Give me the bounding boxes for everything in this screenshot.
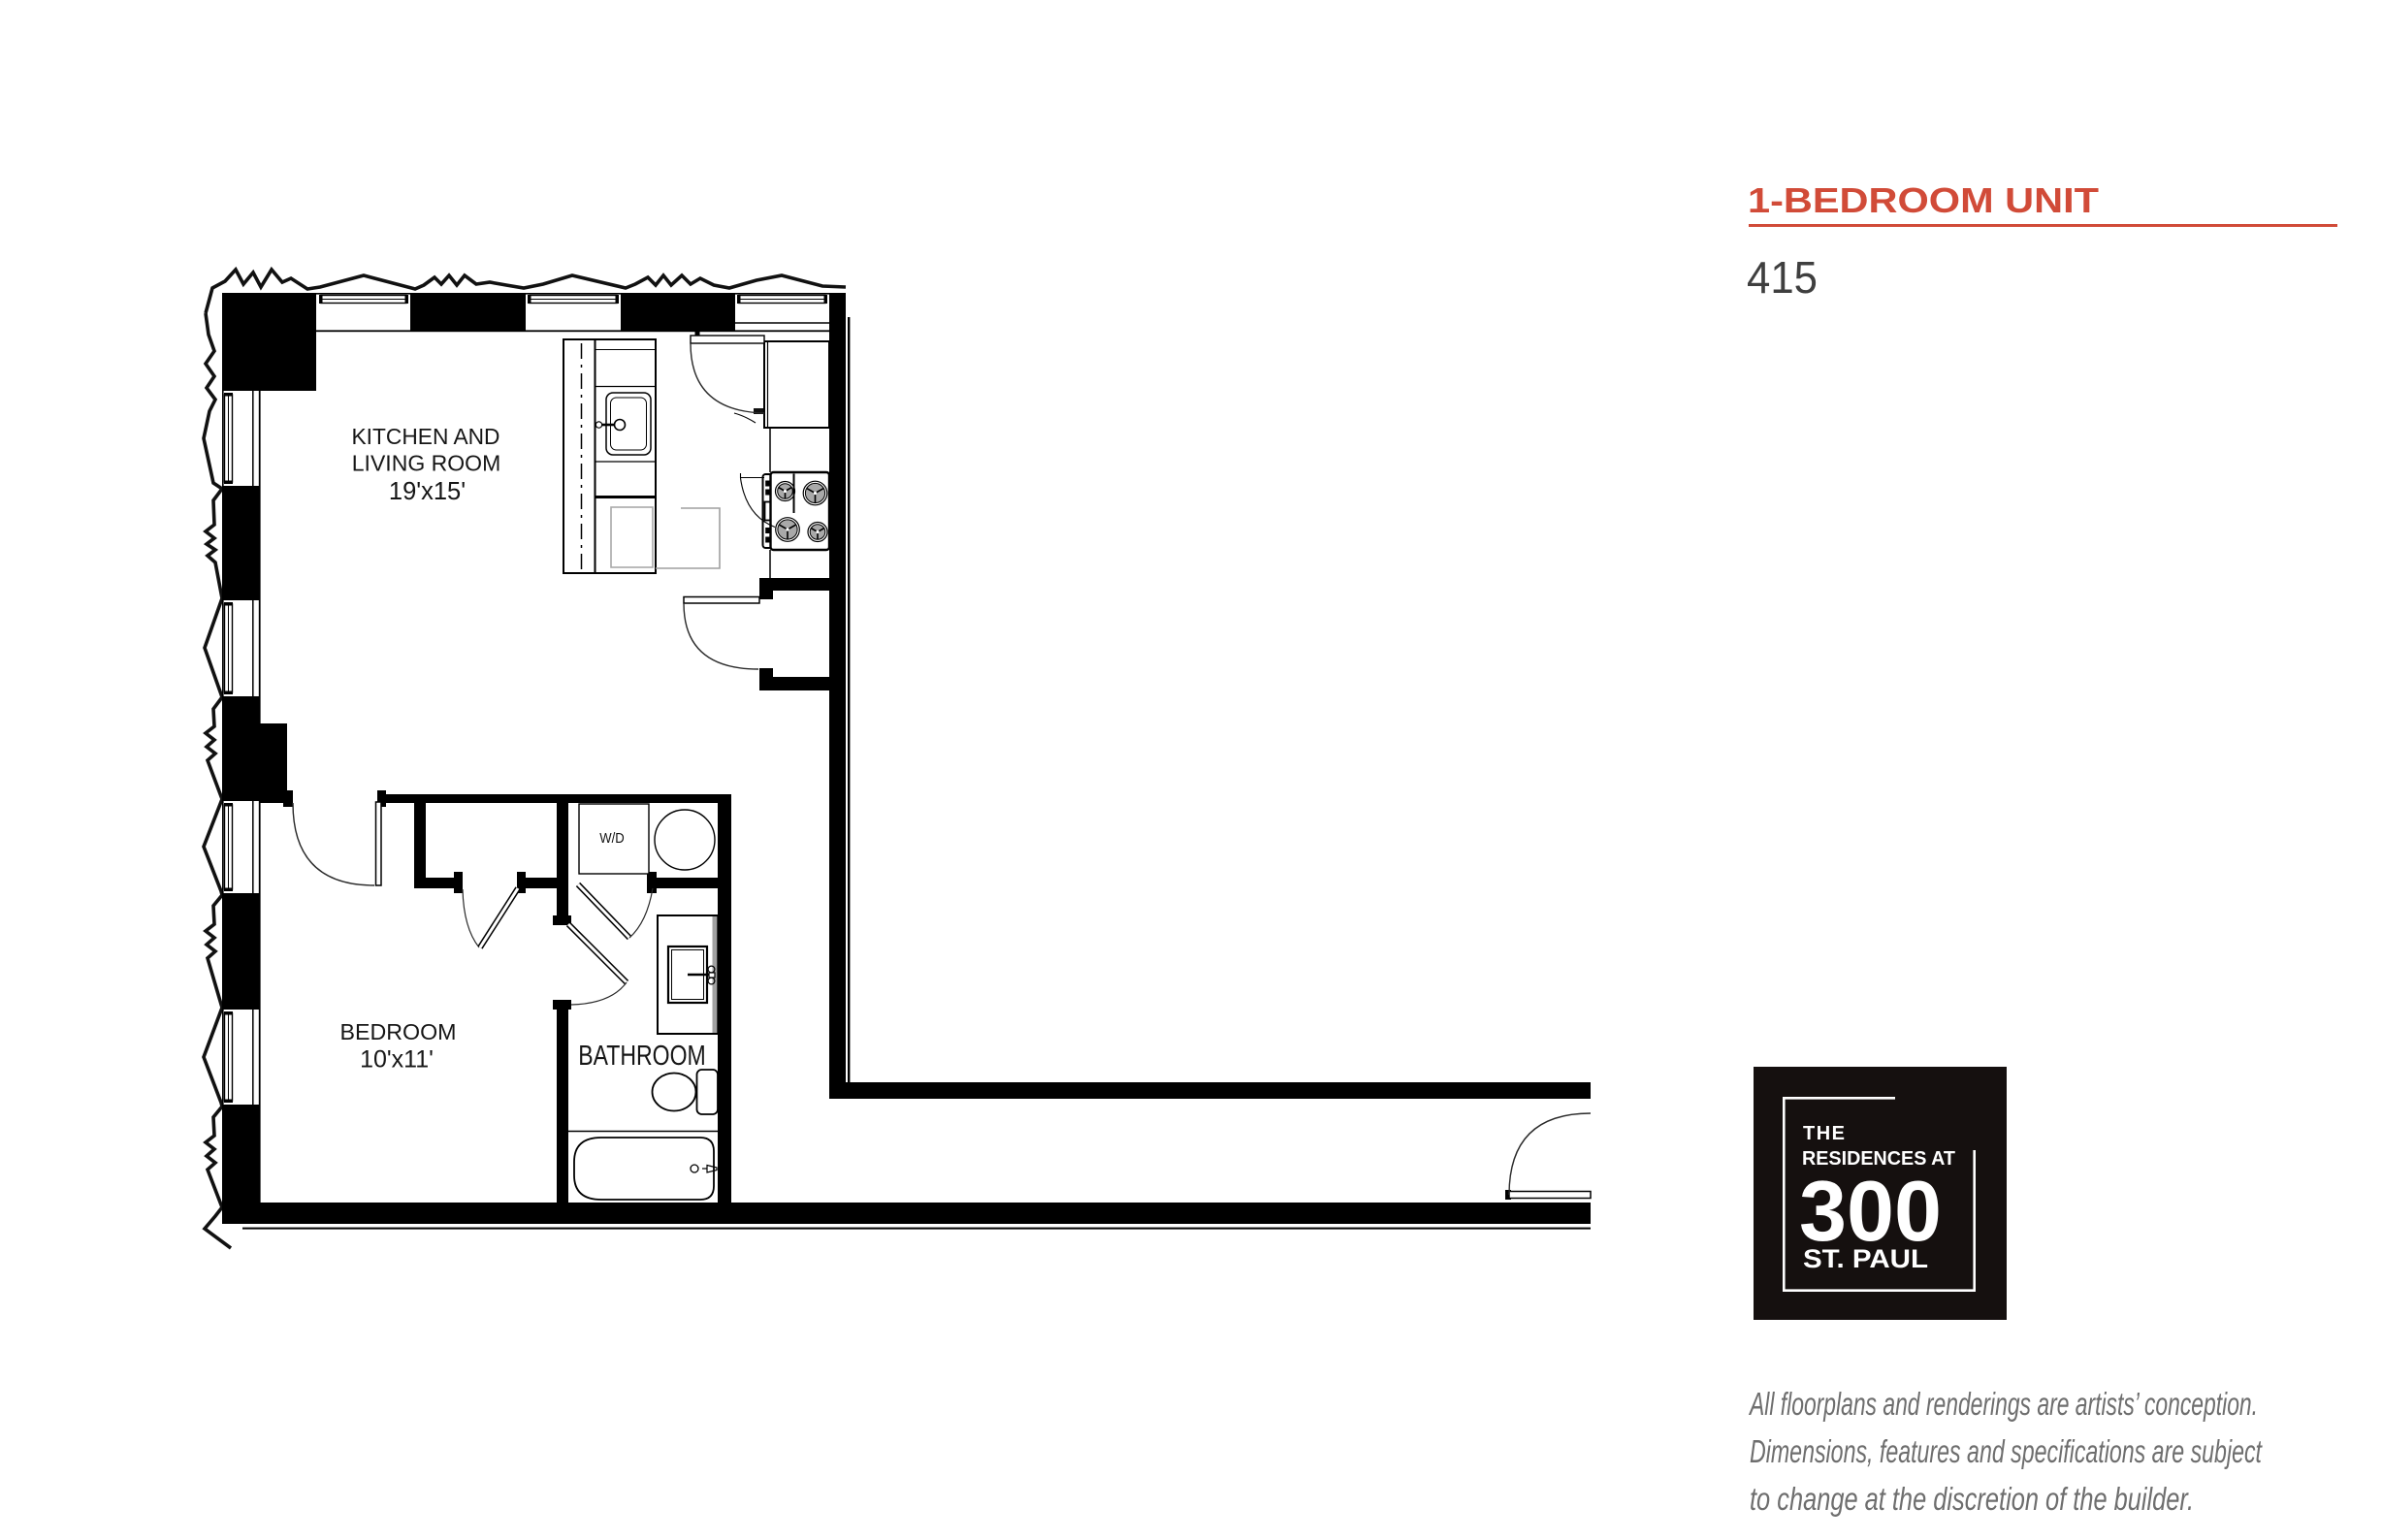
svg-text:10'x11': 10'x11' xyxy=(360,1046,434,1074)
svg-text:19'x15': 19'x15' xyxy=(389,478,466,505)
svg-text:BATHROOM: BATHROOM xyxy=(578,1041,706,1072)
svg-text:THE: THE xyxy=(1803,1123,1847,1144)
svg-text:KITCHEN AND: KITCHEN AND xyxy=(352,424,500,449)
svg-text:All floorplans and renderings: All floorplans and renderings are artist… xyxy=(1749,1386,2258,1422)
svg-text:Dimensions, features and speci: Dimensions, features and specifications … xyxy=(1750,1433,2263,1469)
svg-text:415: 415 xyxy=(1747,252,1818,303)
svg-text:W/D: W/D xyxy=(599,830,625,847)
svg-text:ST. PAUL: ST. PAUL xyxy=(1803,1244,1928,1273)
svg-text:1-BEDROOM UNIT: 1-BEDROOM UNIT xyxy=(1748,180,2099,220)
svg-text:LIVING ROOM: LIVING ROOM xyxy=(352,451,501,476)
svg-text:to change at the discretion of: to change at the discretion of the build… xyxy=(1750,1481,2194,1517)
svg-text:BEDROOM: BEDROOM xyxy=(340,1019,457,1044)
